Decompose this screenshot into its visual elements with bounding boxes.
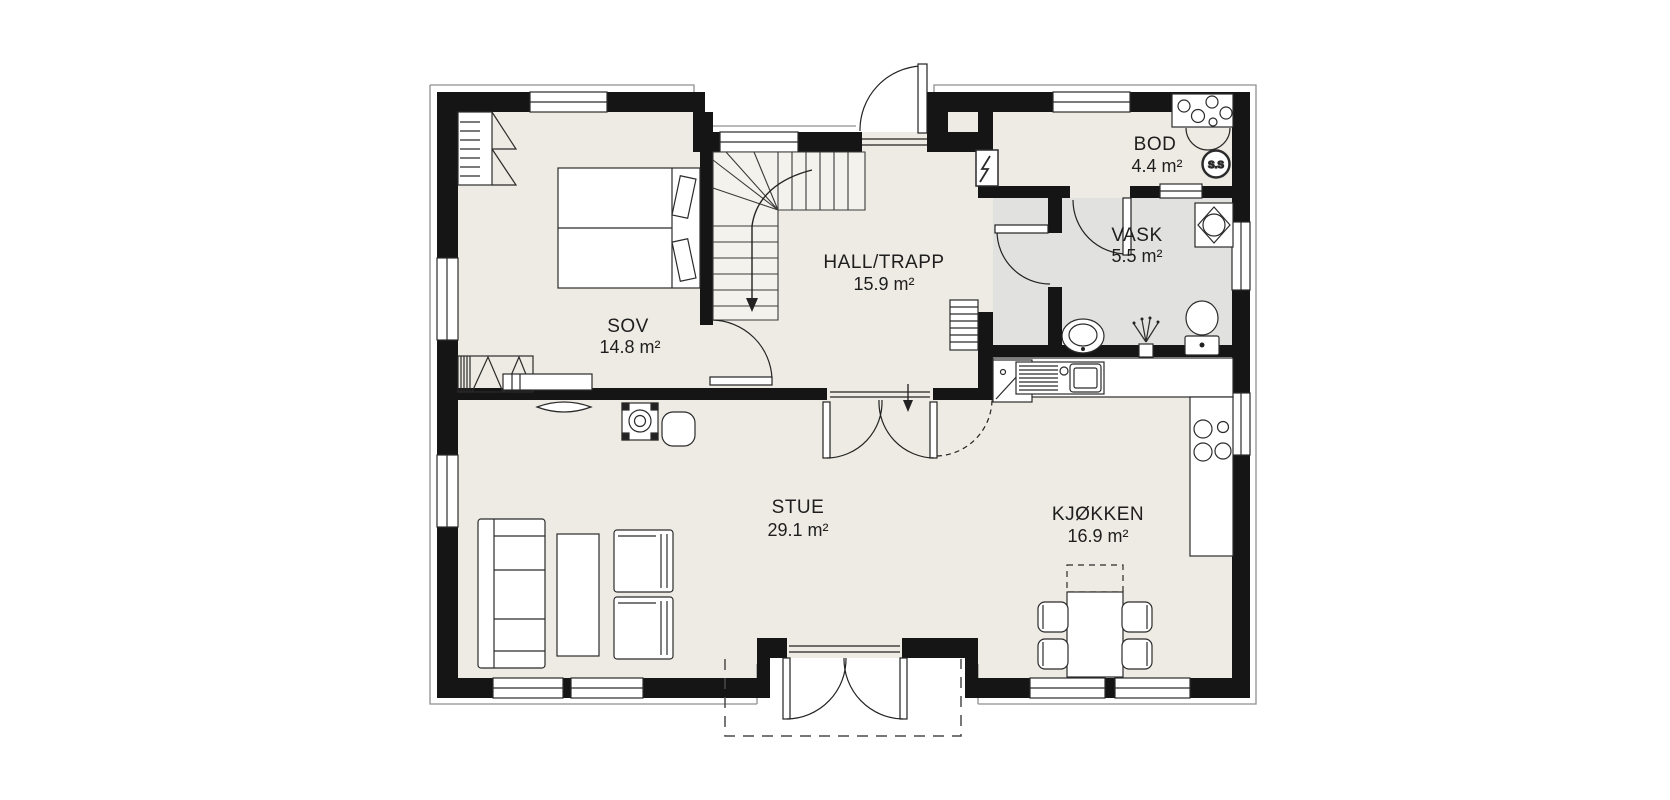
- window-hall-top: [720, 132, 798, 152]
- room-label-sov: SOV: [607, 316, 649, 337]
- room-label-kjokken: KJØKKEN: [1052, 504, 1144, 525]
- room-area-bod: 4.4 m²: [1131, 156, 1182, 176]
- armchair-2: [614, 597, 673, 659]
- room-area-stue: 29.1 m²: [767, 520, 828, 540]
- window-kjokken-bottom-2: [1115, 678, 1190, 698]
- electrical-panel: [976, 150, 998, 186]
- wall-hatch: [1160, 184, 1202, 198]
- sofa: [478, 519, 545, 668]
- kitchen-counter-right: [1190, 397, 1233, 556]
- window-kjokken-right: [1232, 393, 1250, 455]
- room-area-sov: 14.8 m²: [599, 337, 660, 357]
- room-label-stue: STUE: [772, 497, 825, 518]
- window-kjokken-bottom-1: [1030, 678, 1105, 698]
- kitchen-sink: [1016, 362, 1104, 394]
- floor-plan-drawing: S.S SOV 14.8 m² HALL/TRAPP 15.9 m² BOD 4…: [0, 0, 1670, 800]
- double-bed: [558, 168, 700, 288]
- central-vacuum-label: S.S: [1208, 160, 1224, 171]
- dresser: [503, 374, 592, 390]
- window-sov-left: [437, 258, 458, 340]
- window-vask-right: [1232, 222, 1250, 290]
- room-area-hall: 15.9 m²: [853, 274, 914, 294]
- room-area-kjokken: 16.9 m²: [1067, 526, 1128, 546]
- central-vacuum: S.S: [1203, 151, 1230, 178]
- coffee-table: [557, 534, 599, 656]
- room-area-vask: 5.5 m²: [1111, 246, 1162, 266]
- window-bod-top: [1053, 92, 1130, 112]
- side-table: [662, 412, 695, 446]
- radiator: [950, 300, 978, 350]
- window-stue-left: [437, 455, 458, 527]
- room-label-hall: HALL/TRAPP: [823, 252, 944, 273]
- wood-stove: [622, 403, 658, 440]
- armchair-1: [614, 530, 673, 592]
- laundry-sink: [1062, 319, 1104, 353]
- washing-machine: [1195, 203, 1233, 247]
- toilet: [1185, 301, 1219, 355]
- window-sov-top: [530, 92, 607, 112]
- floor-plan-page: S.S SOV 14.8 m² HALL/TRAPP 15.9 m² BOD 4…: [0, 0, 1670, 800]
- window-stue-bottom-2: [571, 678, 643, 698]
- room-label-vask: VASK: [1111, 225, 1162, 246]
- room-label-bod: BOD: [1134, 134, 1177, 155]
- window-stue-bottom-1: [493, 678, 563, 698]
